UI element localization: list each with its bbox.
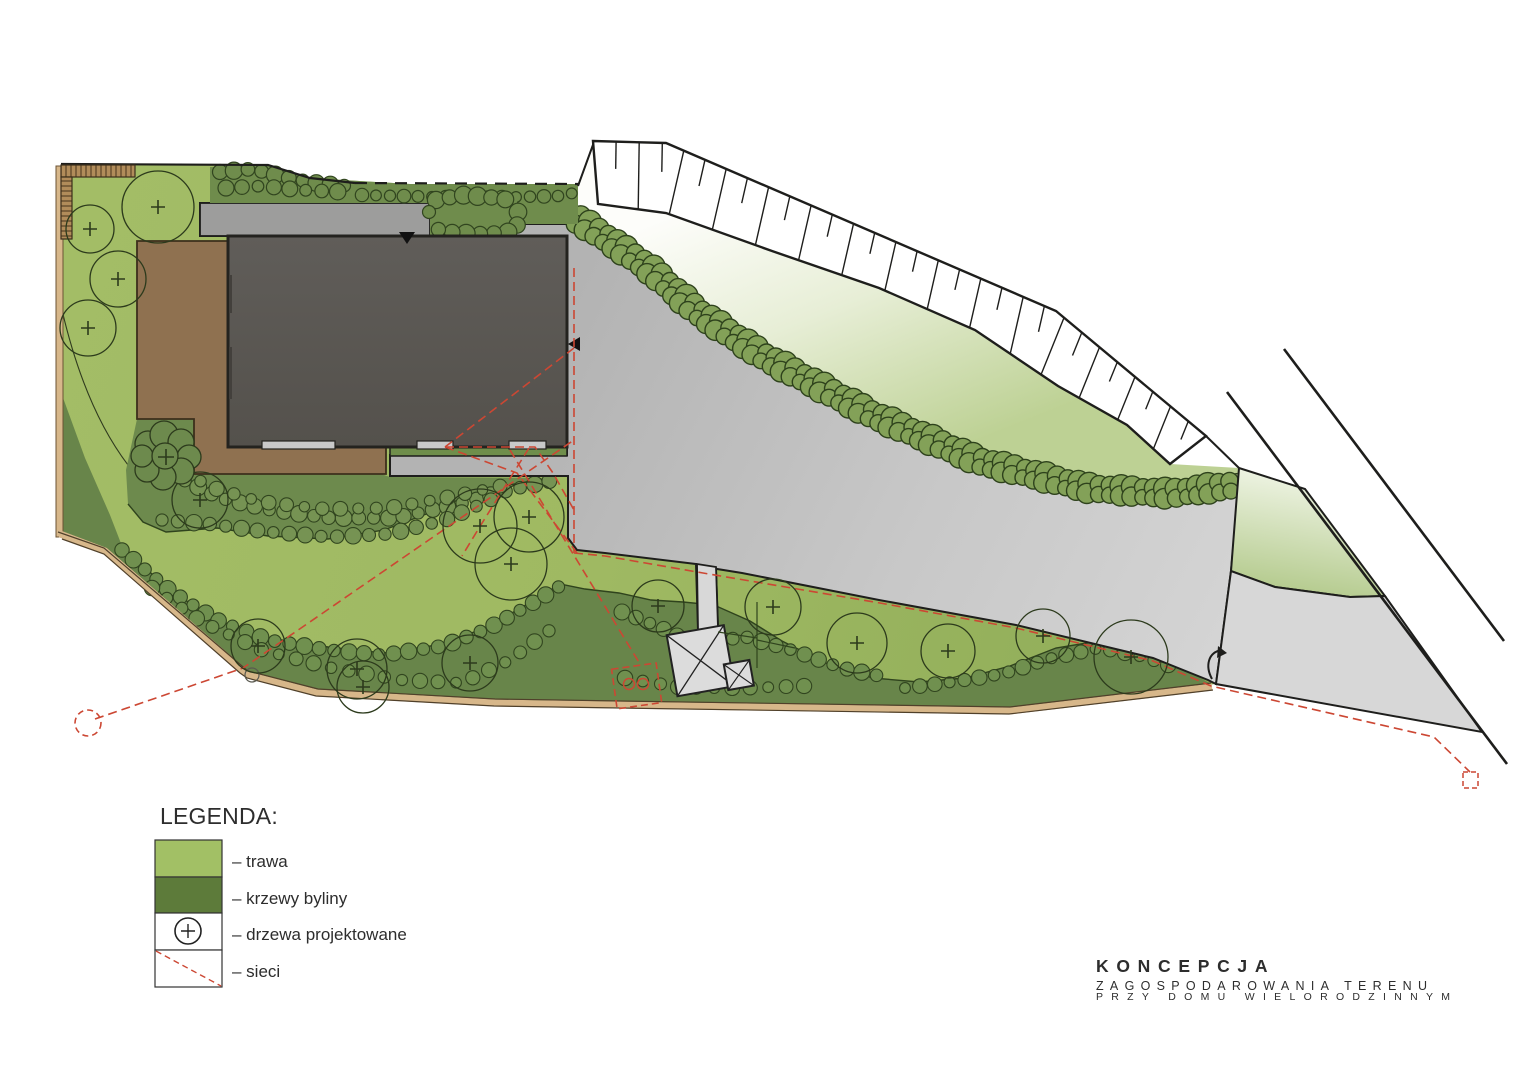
svg-text:KONCEPCJA: KONCEPCJA [1096,956,1275,976]
svg-text:PRZY DOMU WIELORODZINNYM: PRZY DOMU WIELORODZINNYM [1096,991,1458,1003]
svg-text:LEGENDA:: LEGENDA: [160,803,278,829]
svg-text:– sieci: – sieci [232,962,280,981]
svg-text:– trawa: – trawa [232,852,288,871]
svg-text:– drzewa projektowane: – drzewa projektowane [232,925,407,944]
svg-text:– krzewy byliny: – krzewy byliny [232,889,348,908]
